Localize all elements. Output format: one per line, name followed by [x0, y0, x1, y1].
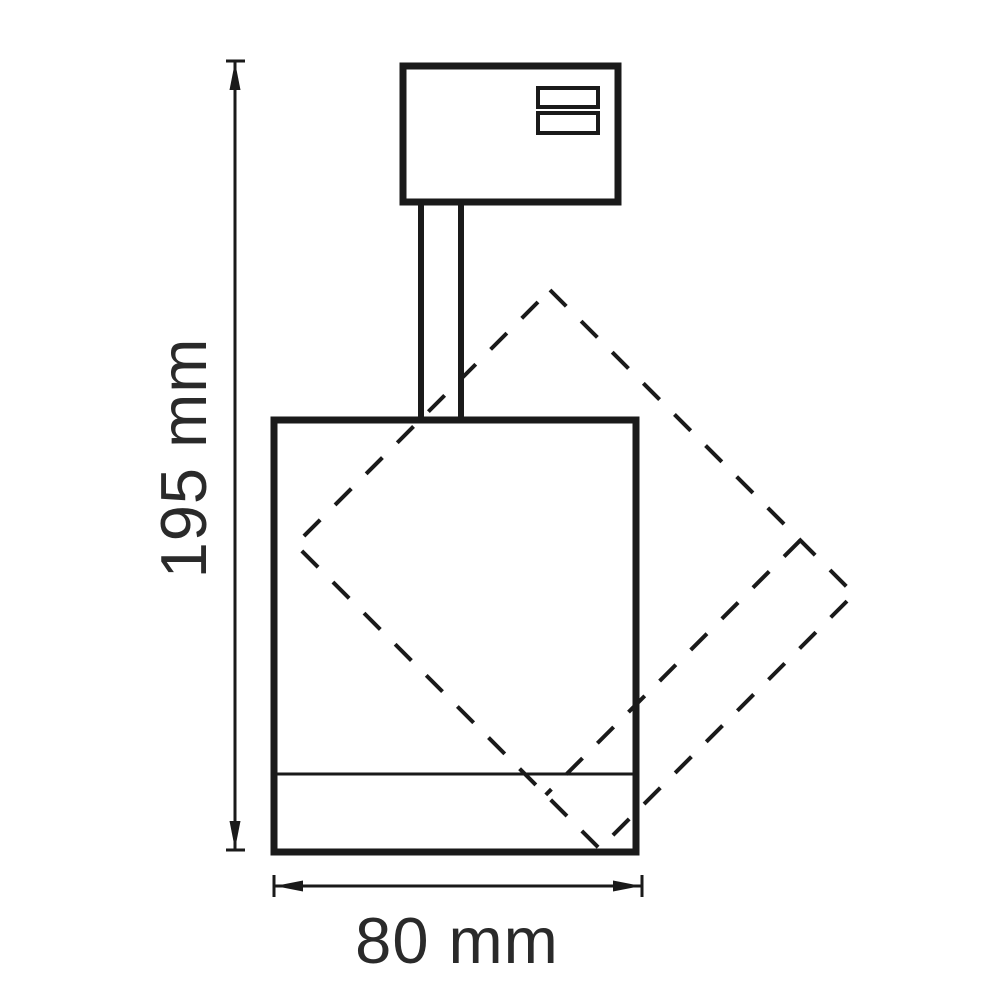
adapter-contact-slot-top	[538, 88, 598, 107]
arrow-right-icon	[613, 881, 641, 892]
height-dimension: 195 mm	[147, 61, 245, 850]
width-dimension: 80 mm	[274, 875, 642, 977]
dimension-drawing: 195 mm 80 mm	[0, 0, 1000, 1000]
stem	[421, 202, 461, 420]
adapter-contact-slot-bottom	[538, 113, 598, 133]
height-dimension-label: 195 mm	[147, 338, 220, 579]
width-dimension-label: 80 mm	[355, 904, 559, 977]
arrow-up-icon	[230, 62, 241, 90]
arrow-left-icon	[275, 881, 303, 892]
lamp-body	[274, 420, 636, 852]
arrow-down-icon	[230, 821, 241, 849]
